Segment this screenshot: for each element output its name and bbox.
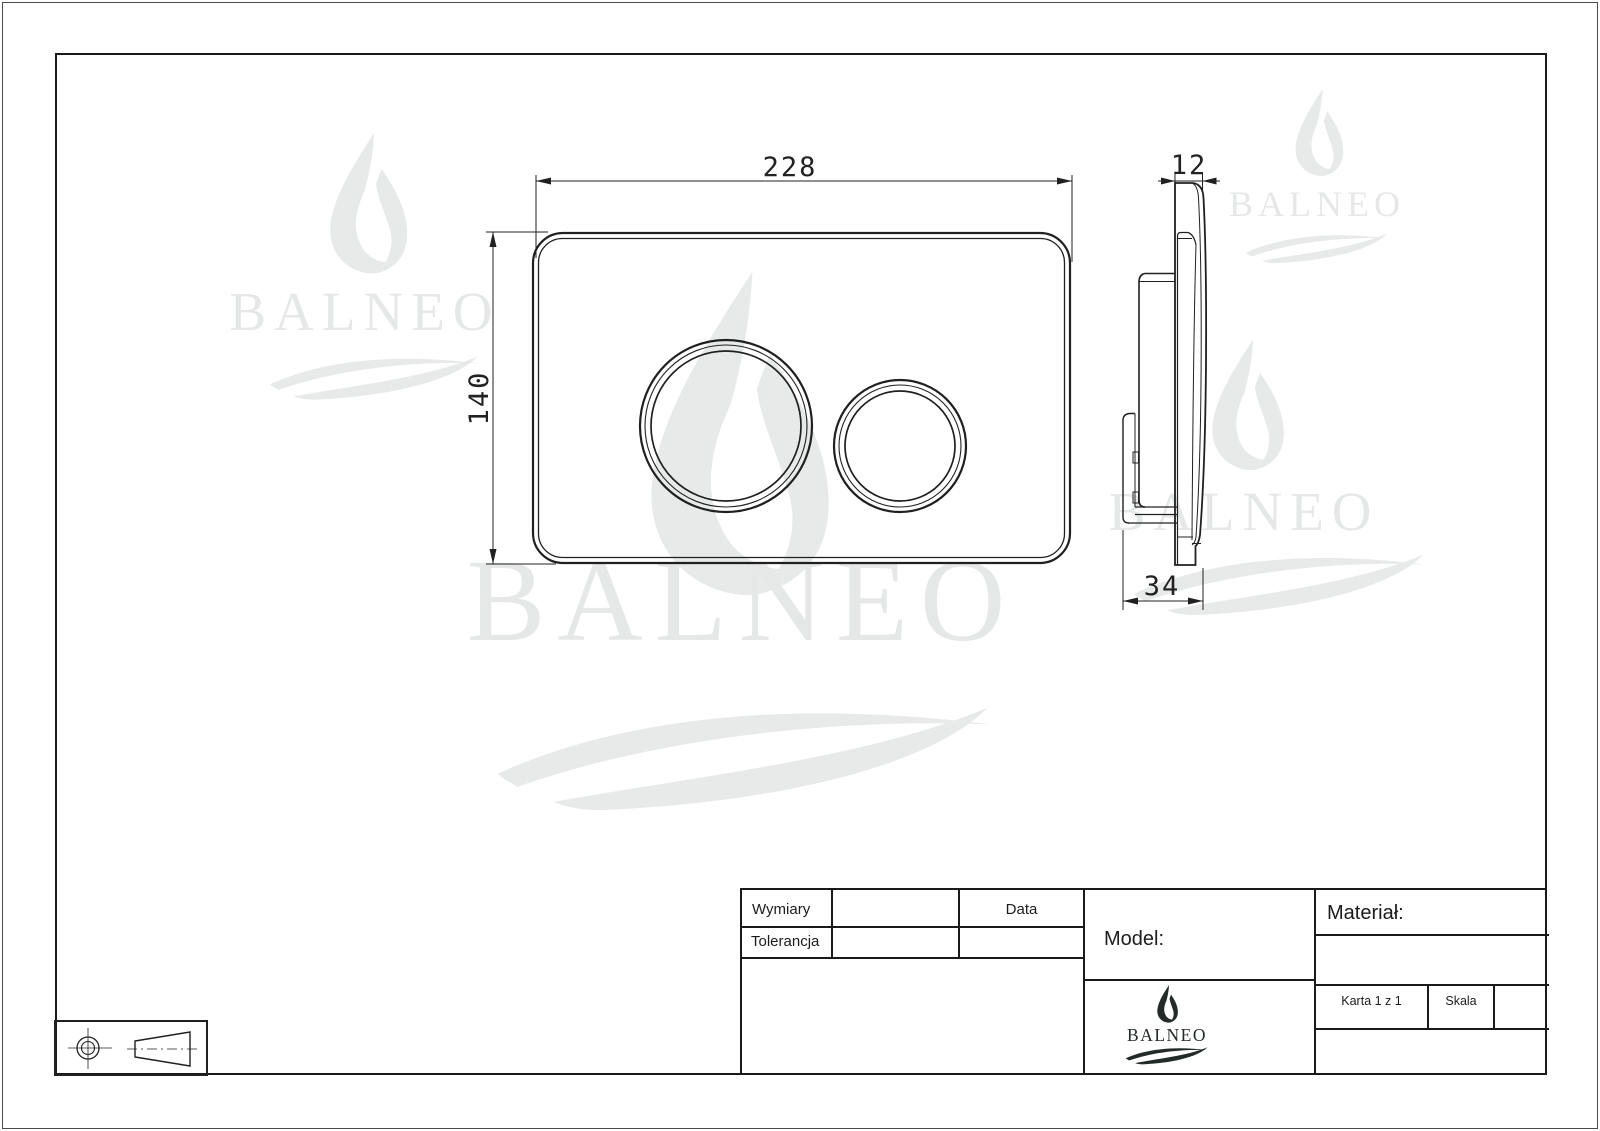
projection-symbol bbox=[55, 1021, 207, 1075]
dim-height-label: 140 bbox=[464, 371, 495, 426]
date-label: Data bbox=[960, 901, 1083, 918]
divider bbox=[1314, 984, 1549, 986]
balneo-leaf-icon bbox=[330, 133, 407, 274]
balneo-wave-icon bbox=[270, 356, 479, 399]
divider bbox=[742, 926, 1085, 928]
divider bbox=[1314, 934, 1549, 936]
side-housing bbox=[1139, 274, 1175, 508]
divider bbox=[1314, 890, 1316, 1073]
dim-width-label: 228 bbox=[763, 152, 818, 183]
dim-thickness: 12 bbox=[1158, 150, 1220, 191]
sheet-label: Karta 1 z 1 bbox=[1316, 994, 1427, 1008]
drawing-sheet: BALNEO BALNEO BALNEO BALNEO bbox=[0, 0, 1600, 1131]
balneo-logo: BALNEO bbox=[1124, 984, 1210, 1070]
scale-label: Skala bbox=[1429, 994, 1493, 1008]
divider bbox=[742, 957, 1085, 959]
balneo-watermark-left: BALNEO bbox=[229, 133, 500, 400]
watermark-text: BALNEO bbox=[1229, 184, 1405, 224]
balneo-leaf-icon bbox=[1157, 985, 1178, 1023]
dimensions-label: Wymiary bbox=[752, 901, 810, 918]
logo-text: BALNEO bbox=[1127, 1025, 1207, 1045]
model-label: Model: bbox=[1104, 928, 1164, 951]
divider bbox=[1083, 890, 1085, 1073]
title-block: Wymiary Tolerancja Data Model: Materiał:… bbox=[740, 888, 1547, 1075]
watermark-text: BALNEO bbox=[1108, 481, 1379, 542]
balneo-wave-icon bbox=[1246, 234, 1388, 263]
dim-depth: 34 bbox=[1123, 530, 1203, 610]
balneo-leaf-icon bbox=[1296, 89, 1344, 176]
watermark-text: BALNEO bbox=[467, 535, 1018, 666]
dim-width: 228 bbox=[536, 152, 1072, 262]
divider bbox=[1493, 985, 1495, 1029]
balneo-leaf-icon bbox=[1212, 340, 1284, 471]
dim-thickness-label: 12 bbox=[1171, 150, 1208, 181]
divider bbox=[831, 890, 833, 958]
balneo-watermark-top-right: BALNEO bbox=[1229, 89, 1405, 263]
watermark-layer: BALNEO BALNEO BALNEO BALNEO bbox=[229, 89, 1424, 810]
tolerance-label: Tolerancja bbox=[751, 933, 819, 950]
divider bbox=[1314, 1028, 1549, 1030]
flange-clip bbox=[1133, 452, 1139, 463]
dim-depth-label: 34 bbox=[1144, 571, 1181, 602]
watermark-text: BALNEO bbox=[229, 281, 500, 342]
small-flush-button bbox=[834, 380, 966, 512]
balneo-wave-icon bbox=[1126, 1047, 1208, 1064]
material-label: Materiał: bbox=[1327, 902, 1404, 925]
balneo-wave-icon bbox=[498, 708, 990, 810]
divider bbox=[1083, 979, 1316, 981]
